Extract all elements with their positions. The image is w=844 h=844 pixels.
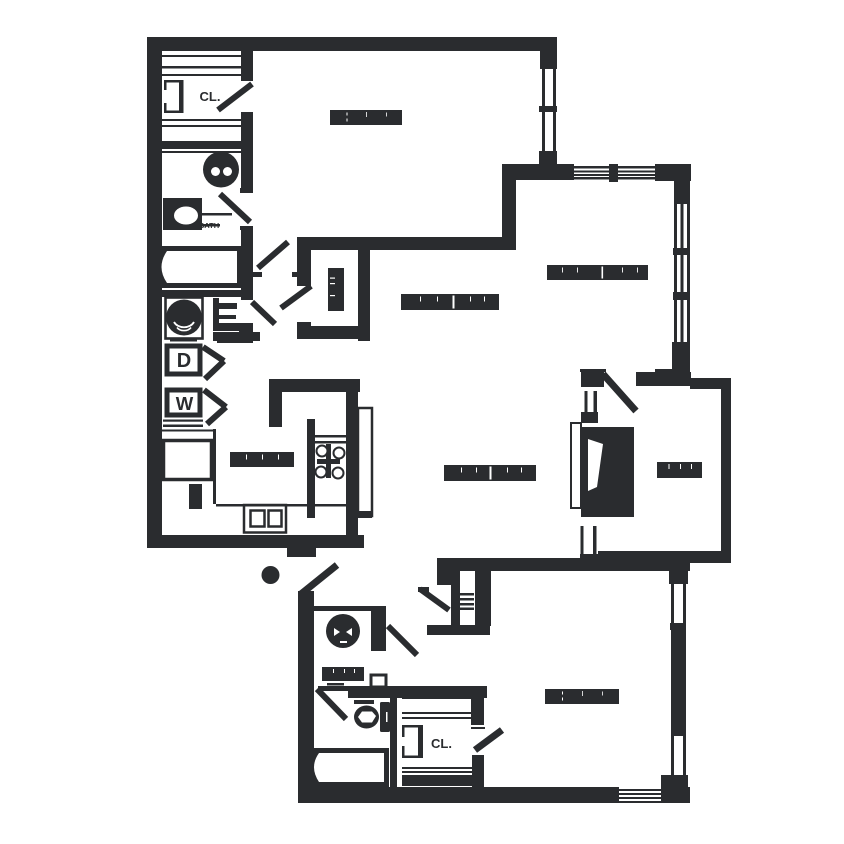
svg-text:CL.: CL.	[431, 736, 452, 751]
svg-text:W: W	[176, 393, 194, 414]
svg-text:CL.: CL.	[200, 89, 221, 104]
svg-text:BATH: BATH	[199, 221, 219, 230]
svg-text:D: D	[177, 350, 191, 372]
